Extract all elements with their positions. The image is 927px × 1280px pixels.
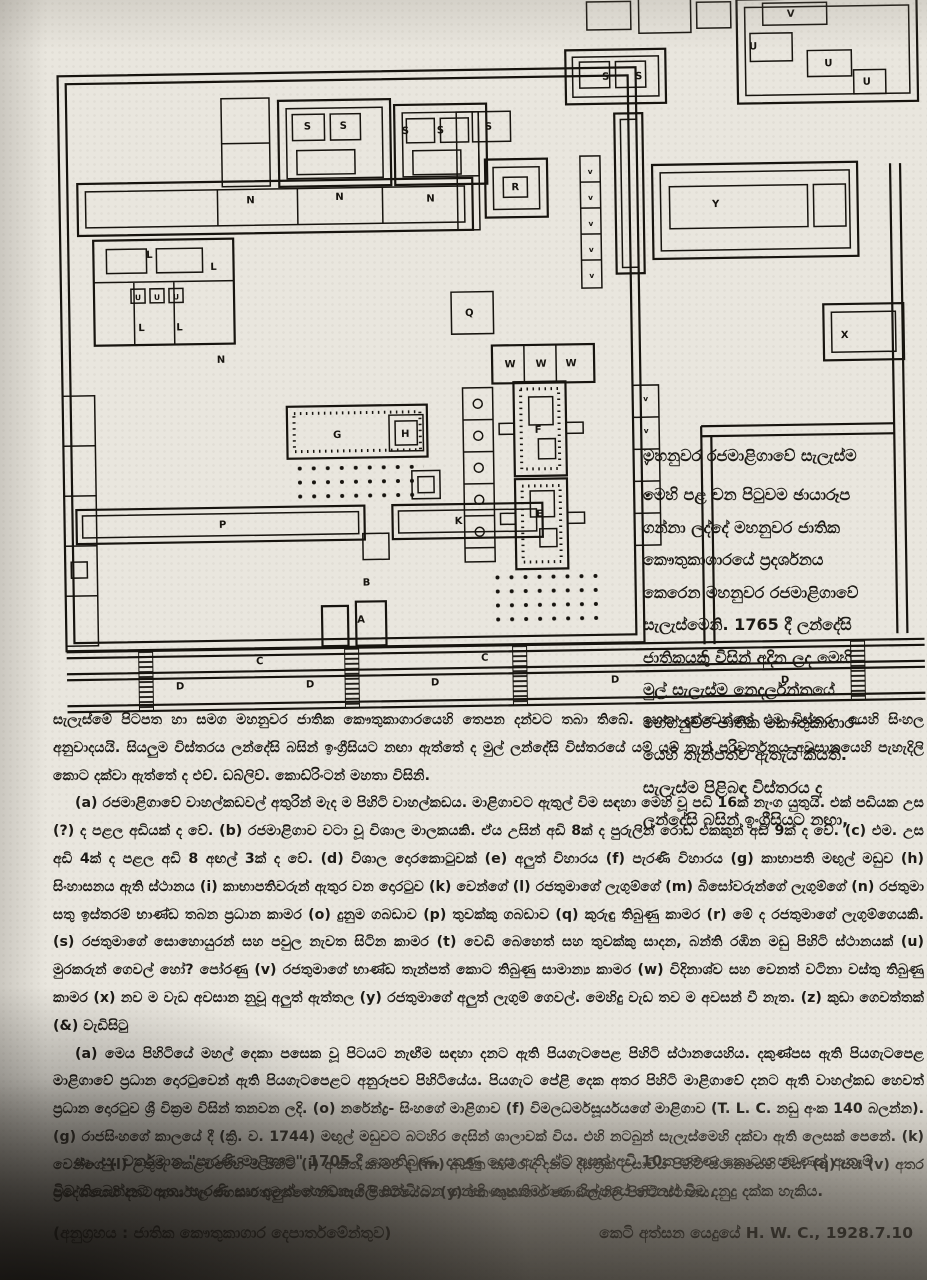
svg-text:v: v: [644, 426, 649, 435]
svg-text:C: C: [256, 656, 264, 667]
svg-text:R: R: [511, 182, 519, 193]
svg-text:W: W: [536, 359, 547, 370]
svg-text:H: H: [401, 429, 410, 440]
body-paragraph-legend: (a) රජමාළිගාවේ වාහල්කඩවල් අතුරින් මැද ම …: [53, 790, 924, 1040]
svg-text:K: K: [455, 516, 464, 527]
caption-line: ගන්නා ලද්දේ මහනුවර ජාතික: [643, 512, 927, 545]
svg-text:L: L: [210, 262, 217, 273]
svg-text:C: C: [481, 653, 489, 664]
svg-text:A: A: [357, 615, 365, 626]
caption-line: කෙරෙන මහනුවර රජමාළිගාවේ: [643, 577, 927, 610]
body-paragraph-intro: සැලැස්මේ පිටපත හා සමග මහනුවර ජාතික කෞතුක…: [53, 707, 924, 790]
svg-text:v: v: [588, 219, 593, 228]
svg-text:S: S: [304, 121, 311, 132]
svg-text:N: N: [335, 192, 344, 203]
body-text: සැලැස්මේ පිටපත හා සමග මහනුවර ජාතික කෞතුක…: [53, 707, 924, 1207]
svg-text:D: D: [306, 679, 314, 690]
svg-text:X: X: [841, 330, 849, 341]
svg-text:G: G: [333, 430, 341, 441]
svg-text:Y: Y: [711, 199, 720, 210]
plan-hall-g-h: [287, 404, 440, 502]
plan-north-east-buildings: [564, 0, 918, 106]
editorial-note: සැ. යු. වර්තමාන "පැරණි මාළිගාව" 1705 දී …: [53, 1146, 873, 1206]
footer: (අනුග්‍රහය : ජාතික කෞතුකාගාර දෙපාර්තමේන්…: [53, 1224, 913, 1243]
svg-text:v: v: [588, 193, 593, 202]
svg-text:U: U: [154, 293, 160, 302]
svg-text:V: V: [787, 9, 795, 20]
page-title: මහනුවර රජමාළිගාවේ සැලැස්ම: [643, 441, 927, 471]
svg-text:W: W: [505, 359, 516, 370]
svg-text:U: U: [173, 292, 179, 301]
svg-text:v: v: [643, 394, 648, 403]
svg-text:v: v: [588, 167, 593, 176]
svg-text:D: D: [176, 681, 184, 692]
svg-text:L: L: [138, 323, 145, 334]
caption-line: මුල් සැලැස්ම නෙදර්ලන්තයේ: [643, 674, 927, 707]
svg-text:P: P: [219, 520, 227, 531]
svg-text:S: S: [485, 122, 492, 133]
svg-text:L: L: [176, 322, 183, 333]
svg-text:B: B: [363, 577, 371, 588]
svg-text:U: U: [749, 41, 757, 52]
svg-text:v: v: [589, 271, 594, 280]
svg-text:S: S: [602, 72, 609, 83]
caption-line: මෙහි පළ වන පිටුවම ඡායාරූප: [643, 479, 927, 512]
caption-line: කෞතුකාගාරයේ ප්‍රදර්ශනය: [643, 544, 927, 577]
credit-line: (අනුග්‍රහය : ජාතික කෞතුකාගාර දෙපාර්තමේන්…: [53, 1224, 391, 1243]
svg-text:Q: Q: [465, 308, 474, 319]
plan-room-clusters: [58, 93, 598, 646]
svg-text:N: N: [246, 195, 255, 206]
svg-text:L: L: [146, 250, 153, 261]
svg-text:U: U: [824, 58, 832, 69]
svg-text:E: E: [536, 509, 543, 520]
caption-line: සැලැස්මෙනි. 1765 දී ලන්දේසි: [643, 609, 927, 642]
svg-text:W: W: [566, 358, 577, 369]
svg-text:U: U: [863, 77, 871, 88]
svg-text:N: N: [217, 355, 226, 366]
svg-text:U: U: [135, 293, 141, 302]
svg-text:S: S: [437, 125, 444, 136]
svg-text:v: v: [589, 245, 594, 254]
svg-text:D: D: [431, 677, 439, 688]
plan-ranges-p-k-gate-a: [76, 503, 544, 650]
svg-text:D: D: [611, 675, 619, 686]
signature-line: කෙටි අත්සන යෙදුයේ H. W. C., 1928.7.10: [599, 1224, 913, 1243]
svg-text:S: S: [402, 126, 409, 137]
svg-text:S: S: [340, 121, 347, 132]
svg-text:F: F: [535, 425, 542, 436]
svg-text:N: N: [426, 193, 435, 204]
scanned-document-page: SSSSSSSVUUURNNNLLUUULLNQWWWYXGHFEPKBACCC…: [0, 0, 927, 1280]
caption-line: ජාතිකයකු විසින් අදින ලද මෙහි: [643, 642, 927, 675]
svg-text:S: S: [635, 71, 642, 82]
